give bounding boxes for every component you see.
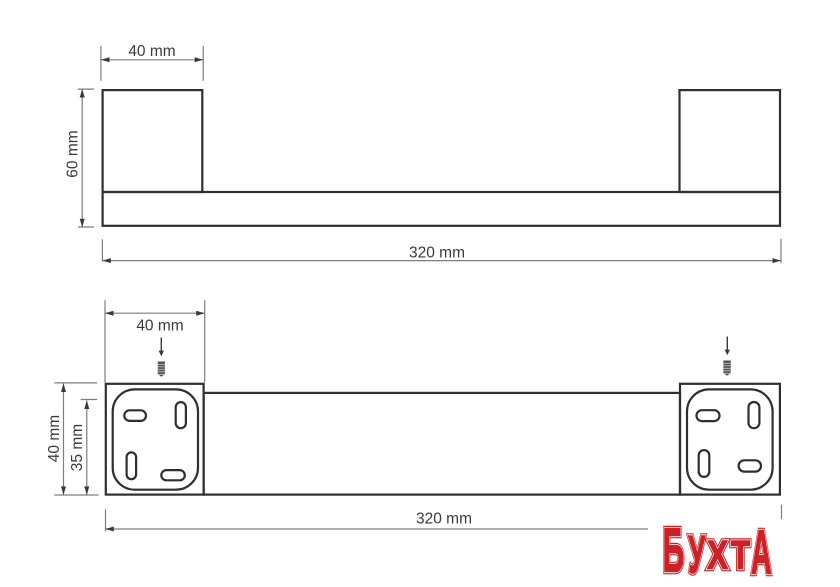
svg-text:40 mm: 40 mm — [128, 43, 175, 60]
svg-text:320 mm: 320 mm — [416, 511, 472, 528]
svg-text:60 mm: 60 mm — [65, 130, 82, 177]
svg-text:35 mm: 35 mm — [69, 424, 86, 471]
svg-text:Т: Т — [731, 533, 750, 578]
svg-text:40 mm: 40 mm — [136, 318, 183, 335]
svg-text:320 mm: 320 mm — [409, 245, 465, 262]
svg-text:А: А — [751, 519, 772, 587]
svg-text:40 mm: 40 mm — [46, 415, 63, 462]
svg-text:Б: Б — [663, 517, 685, 586]
svg-text:У: У — [688, 526, 705, 585]
svg-text:Х: Х — [707, 534, 728, 578]
